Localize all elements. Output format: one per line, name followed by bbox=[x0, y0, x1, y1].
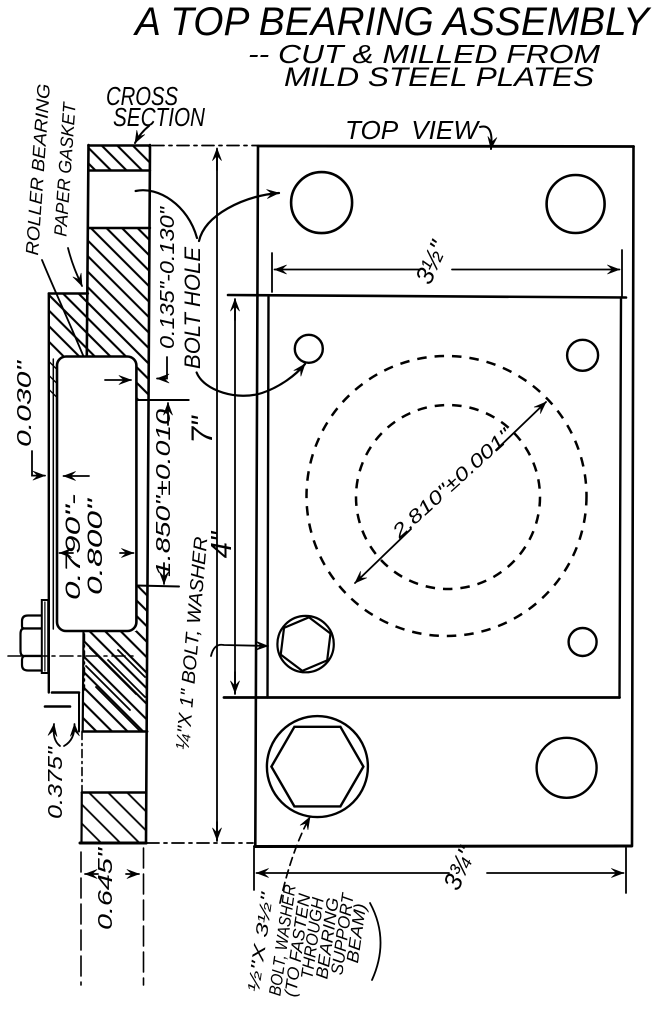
svg-text:TOP VIEW: TOP VIEW bbox=[345, 115, 480, 145]
svg-text:3¾": 3¾" bbox=[438, 842, 482, 894]
svg-text:MILD STEEL PLATES: MILD STEEL PLATES bbox=[284, 62, 594, 92]
svg-text:BOLT HOLE: BOLT HOLE bbox=[180, 247, 205, 369]
svg-text:0.375": 0.375" bbox=[45, 746, 67, 819]
svg-text:0.800": 0.800" bbox=[84, 497, 107, 595]
svg-text:¼"X 1" BOLT, WASHER: ¼"X 1" BOLT, WASHER bbox=[173, 536, 213, 751]
svg-text:ROLLER BEARING: ROLLER BEARING bbox=[22, 83, 54, 256]
svg-text:3½": 3½" bbox=[410, 236, 454, 288]
svg-text:7": 7" bbox=[186, 415, 219, 444]
svg-text:1.850"±0.010: 1.850"±0.010 bbox=[153, 409, 175, 577]
svg-text:SECTION: SECTION bbox=[113, 102, 205, 132]
svg-text:0.645": 0.645" bbox=[95, 847, 117, 930]
svg-text:0.790"-: 0.790"- bbox=[62, 494, 85, 600]
svg-text:0.135"-0.130": 0.135"-0.130" bbox=[157, 206, 179, 349]
svg-text:2.810"±0.001": 2.810"±0.001" bbox=[388, 424, 517, 543]
svg-text:A TOP BEARING ASSEMBLY: A TOP BEARING ASSEMBLY bbox=[133, 0, 652, 44]
svg-text:0.030": 0.030" bbox=[14, 360, 36, 447]
svg-text:PAPER GASKET: PAPER GASKET bbox=[50, 100, 79, 237]
